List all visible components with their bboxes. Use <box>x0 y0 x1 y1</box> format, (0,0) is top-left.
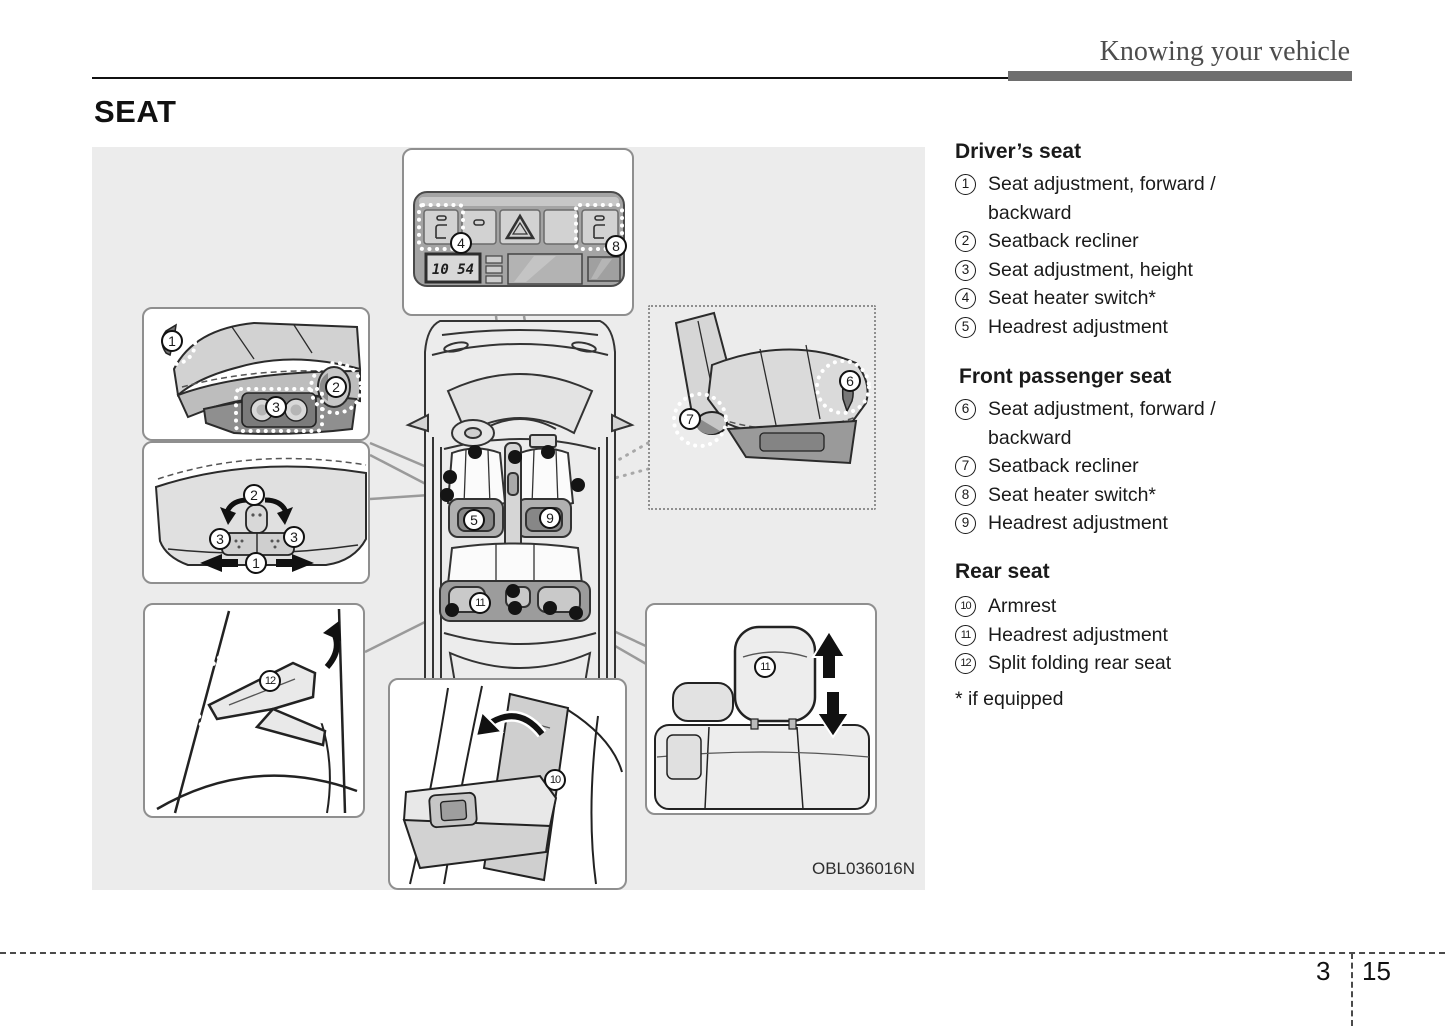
section-title-rear-seat: Rear seat <box>955 560 1050 584</box>
section-title-front-passenger-seat: Front passenger seat <box>959 365 1171 389</box>
item-number: 4 <box>955 288 976 309</box>
footer-dashed-rule <box>0 952 1445 954</box>
rear-headrest-detail-box: 11 <box>645 603 877 815</box>
callout-power-recline: 2 <box>243 484 265 506</box>
page-title: SEAT <box>94 94 176 130</box>
callout-pass-slide: 6 <box>839 370 861 392</box>
front-passenger-list: 6Seat adjustment, forward / backward 7Se… <box>955 395 1275 538</box>
page-number: 15 <box>1362 956 1445 1026</box>
item-number: 6 <box>955 399 976 420</box>
callout-power-rear: 3 <box>283 526 305 548</box>
item-number: 3 <box>955 260 976 281</box>
passenger-seat-illustration <box>650 307 874 508</box>
callout-height-switch: 3 <box>265 396 287 418</box>
item-number: 12 <box>955 653 976 674</box>
callout-rear-headrest-detail: 11 <box>754 656 776 678</box>
driver-seat-list: 1Seat adjustment, forward / backward 2Se… <box>955 170 1275 341</box>
list-item: 1Seat adjustment, forward / backward <box>955 170 1275 227</box>
callout-slide-lever: 1 <box>161 330 183 352</box>
list-item: 8Seat heater switch* <box>955 481 1275 510</box>
list-item: 7Seatback recliner <box>955 452 1275 481</box>
callout-fold-lever: 12 <box>259 670 281 692</box>
rear-headrest-illustration <box>647 605 875 813</box>
list-item: 3Seat adjustment, height <box>955 256 1275 285</box>
item-number: 11 <box>955 625 976 646</box>
item-label: Seat adjustment, forward / backward <box>988 398 1216 449</box>
footnote: * if equipped <box>955 688 1063 711</box>
callout-power-front: 3 <box>209 528 231 550</box>
callout-rear-headrest: 11 <box>469 592 491 614</box>
passenger-seat-detail-box: 6 7 <box>648 305 876 510</box>
section-title-driver-seat: Driver’s seat <box>955 140 1081 164</box>
clock-display: 10 54 <box>432 262 474 278</box>
item-label: Seat heater switch* <box>988 484 1156 506</box>
list-item: 12Split folding rear seat <box>955 649 1275 678</box>
item-label: Seat heater switch* <box>988 287 1156 309</box>
list-item: 11Headrest adjustment <box>955 621 1275 650</box>
center-panel-illustration: 10 54 <box>404 150 632 314</box>
armrest-illustration <box>390 680 625 888</box>
callout-power-slide: 1 <box>245 552 267 574</box>
driver-seat-detail-box: 1 2 3 <box>142 307 370 441</box>
callout-recliner: 2 <box>325 376 347 398</box>
callout-heater-passenger: 8 <box>605 235 627 257</box>
item-number: 8 <box>955 485 976 506</box>
list-item: 9Headrest adjustment <box>955 509 1275 538</box>
rear-seat-list: 10Armrest 11Headrest adjustment 12Split … <box>955 592 1275 678</box>
item-label: Headrest adjustment <box>988 624 1168 646</box>
chapter-title: Knowing your vehicle <box>1100 36 1350 68</box>
item-number: 9 <box>955 513 976 534</box>
item-label: Seat adjustment, height <box>988 259 1193 281</box>
seat-diagram: 5 9 11 <box>92 147 925 890</box>
item-label: Armrest <box>988 595 1056 617</box>
item-label: Headrest adjustment <box>988 316 1168 338</box>
chapter-number: 3 <box>1316 956 1330 987</box>
header-bar <box>1008 71 1352 81</box>
armrest-detail-box: 10 <box>388 678 627 890</box>
item-label: Seat adjustment, forward / backward <box>988 173 1216 224</box>
item-number: 2 <box>955 231 976 252</box>
footer-dashed-divider <box>1351 953 1353 1026</box>
header-rule <box>92 77 1008 79</box>
item-label: Seatback recliner <box>988 230 1139 252</box>
callout-heater-driver: 4 <box>450 232 472 254</box>
center-panel-detail-box: 10 54 4 8 <box>402 148 634 316</box>
item-number: 10 <box>955 596 976 617</box>
item-label: Split folding rear seat <box>988 652 1171 674</box>
callout-headrest-driver: 5 <box>463 509 485 531</box>
fold-lever-detail-box: 12 <box>143 603 365 818</box>
list-item: 5Headrest adjustment <box>955 313 1275 342</box>
item-number: 5 <box>955 317 976 338</box>
manual-page: Knowing your vehicle SEAT <box>0 0 1445 1026</box>
fold-lever-illustration <box>145 605 363 816</box>
item-label: Seatback recliner <box>988 455 1139 477</box>
power-switch-detail-box: 2 3 3 1 <box>142 441 370 584</box>
driver-seat-illustration <box>144 309 368 439</box>
callout-headrest-passenger: 9 <box>539 507 561 529</box>
list-item: 6Seat adjustment, forward / backward <box>955 395 1275 452</box>
list-item: 2Seatback recliner <box>955 227 1275 256</box>
item-number: 1 <box>955 174 976 195</box>
figure-code: OBL036016N <box>812 859 915 879</box>
callout-pass-recliner: 7 <box>679 408 701 430</box>
callout-armrest: 10 <box>544 769 566 791</box>
list-item: 10Armrest <box>955 592 1275 621</box>
item-label: Headrest adjustment <box>988 512 1168 534</box>
item-number: 7 <box>955 456 976 477</box>
list-item: 4Seat heater switch* <box>955 284 1275 313</box>
